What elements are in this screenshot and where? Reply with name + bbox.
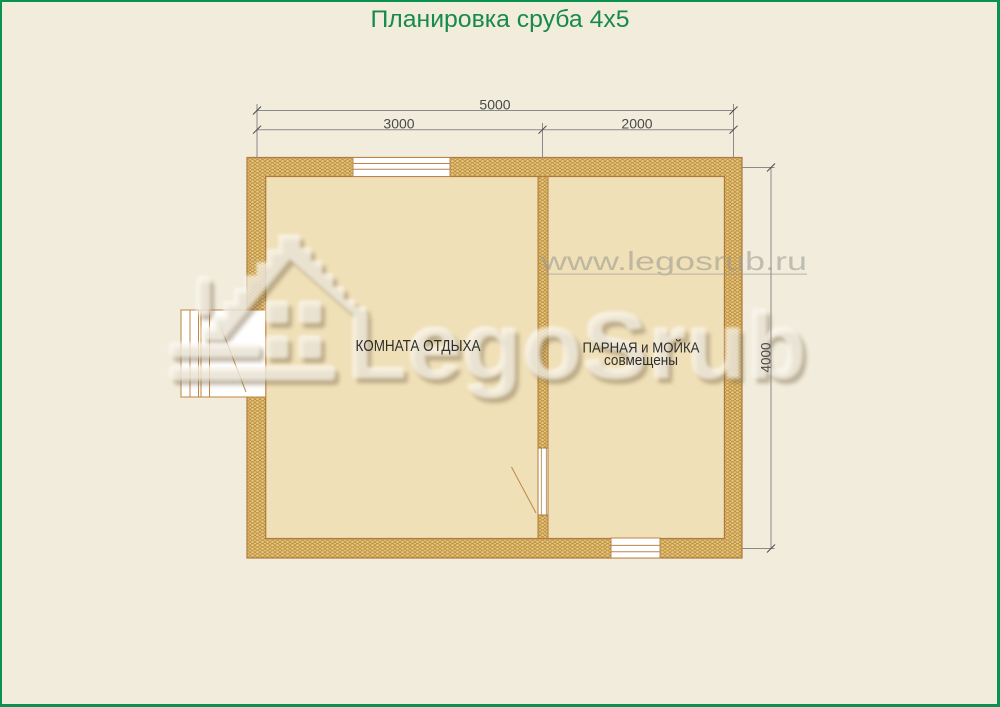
svg-text:Планировка сруба 4х5: Планировка сруба 4х5 bbox=[371, 6, 630, 33]
svg-text:3000: 3000 bbox=[383, 115, 414, 131]
svg-text:www.legosrub.ru: www.legosrub.ru bbox=[540, 246, 807, 276]
svg-text:2000: 2000 bbox=[621, 115, 652, 131]
svg-text:совмещены: совмещены bbox=[604, 352, 678, 369]
svg-text:5000: 5000 bbox=[479, 96, 510, 112]
svg-text:4000: 4000 bbox=[759, 342, 774, 372]
svg-text:КОМНАТА ОТДЫХА: КОМНАТА ОТДЫХА bbox=[356, 338, 481, 355]
